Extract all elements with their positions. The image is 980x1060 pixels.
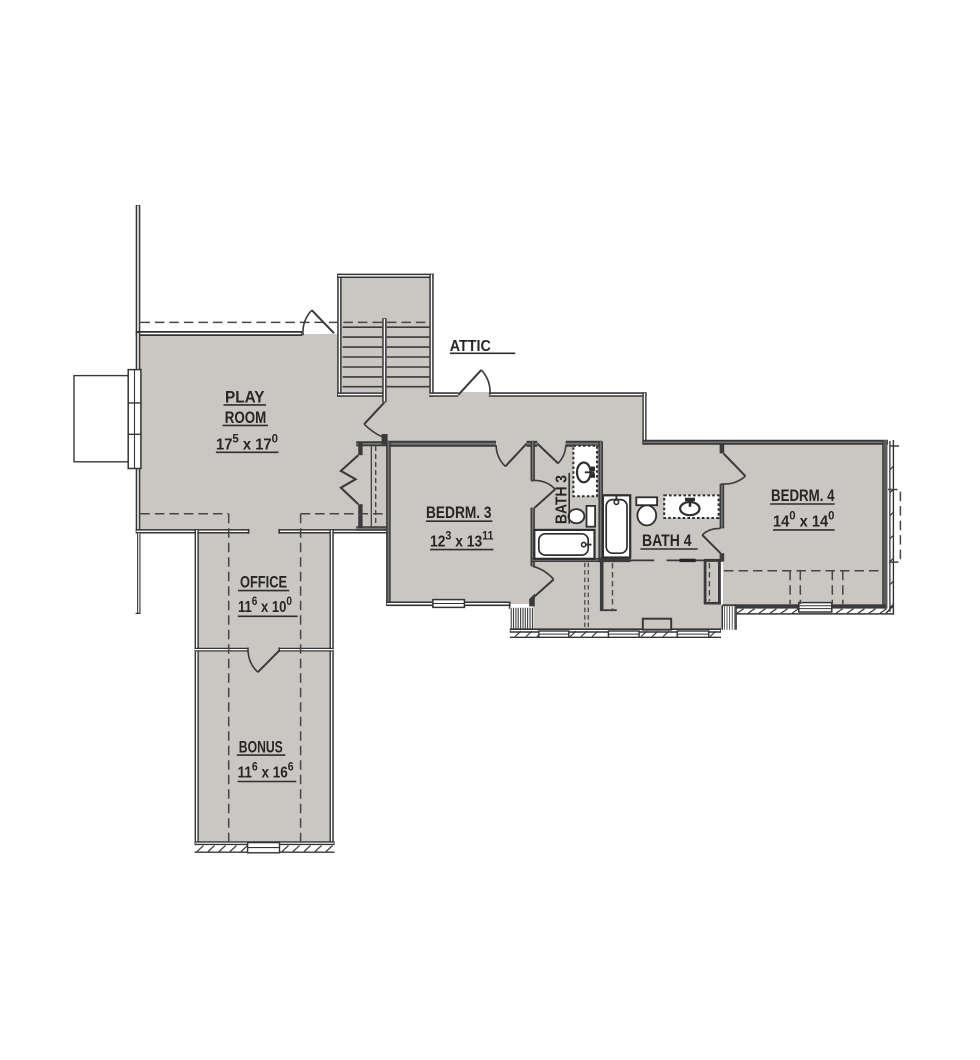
- svg-text:BONUS: BONUS: [239, 738, 283, 756]
- svg-text:OFFICE: OFFICE: [240, 574, 287, 592]
- svg-text:BEDRM. 4: BEDRM. 4: [771, 487, 835, 505]
- svg-text:ROOM: ROOM: [225, 409, 266, 427]
- svg-text:PLAY: PLAY: [225, 388, 265, 406]
- svg-text:BEDRM. 3: BEDRM. 3: [426, 504, 492, 522]
- svg-text:BATH 4: BATH 4: [642, 532, 692, 550]
- svg-text:BATH 3: BATH 3: [554, 475, 571, 524]
